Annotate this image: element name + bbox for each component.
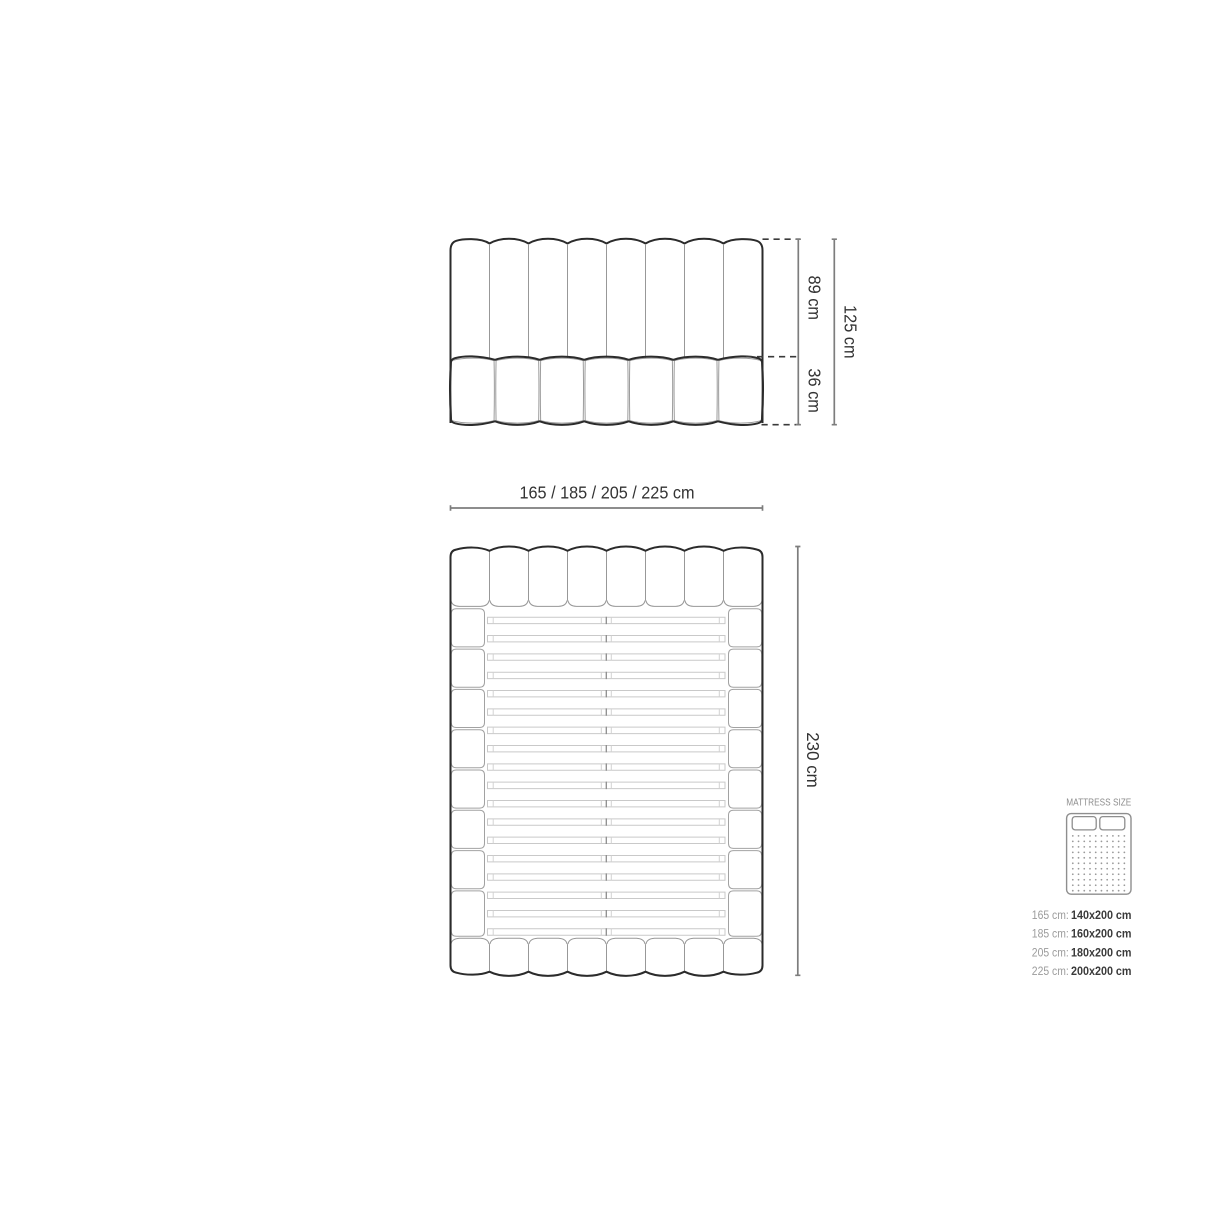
svg-text:200x200 cm: 200x200 cm [1071, 966, 1132, 978]
svg-text:160x200 cm: 160x200 cm [1071, 929, 1132, 941]
svg-text:225 cm:: 225 cm: [1032, 966, 1069, 978]
svg-text:205 cm:: 205 cm: [1032, 947, 1069, 959]
svg-text:36 cm: 36 cm [805, 368, 825, 413]
svg-text:230 cm: 230 cm [803, 732, 823, 788]
svg-text:89 cm: 89 cm [805, 276, 825, 321]
svg-text:MATTRESS SIZE: MATTRESS SIZE [1066, 797, 1131, 808]
svg-text:165 / 185 / 205 / 225 cm: 165 / 185 / 205 / 225 cm [520, 483, 695, 503]
svg-text:140x200 cm: 140x200 cm [1071, 910, 1132, 922]
svg-text:165 cm:: 165 cm: [1032, 910, 1069, 922]
svg-text:185 cm:: 185 cm: [1032, 929, 1069, 941]
svg-text:180x200 cm: 180x200 cm [1071, 947, 1132, 959]
svg-text:125 cm: 125 cm [841, 305, 861, 359]
